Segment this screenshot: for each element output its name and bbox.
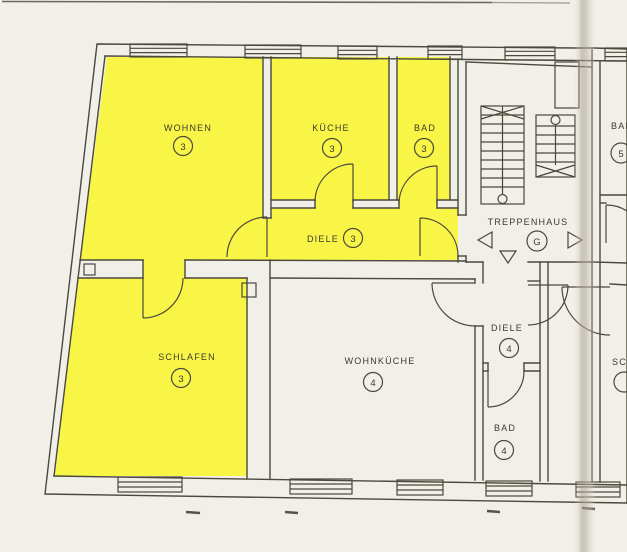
room-number-kueche: 3 [329, 144, 334, 155]
room-label-diele3: DIELE [307, 234, 339, 244]
cropped-top-line [2, 2, 492, 3]
room-label-bad3: BAD [414, 123, 436, 133]
door-right-apartment-upper [606, 205, 627, 243]
window-bottom-wohnkueche-1 [290, 479, 352, 494]
window-top-right-apartment [605, 48, 627, 61]
cropped-top-line-faint [492, 3, 570, 4]
room-number-treppenhaus: G [533, 237, 540, 248]
room-label-bad4: BAD [494, 423, 516, 433]
room-number-schlafen: 3 [178, 374, 183, 385]
window-top-kueche [245, 45, 301, 58]
stairwell [466, 62, 592, 263]
room-bad5-partial: BAD 5 [611, 121, 627, 163]
room-label-bad5: BAD [611, 121, 627, 131]
floor-plan-drawing: WOHNEN 3 KÜCHE 3 BAD 3 DIELE 3 SCHLAFEN … [0, 0, 627, 552]
room-number-diele3: 3 [350, 234, 355, 245]
paper-fold-crease [574, 0, 596, 552]
room-number-circle [614, 372, 627, 392]
room-label-schlafen: SCHLAFEN [158, 352, 216, 362]
room-bad4: BAD 4 [494, 423, 516, 460]
room-number-wohnen: 3 [180, 142, 185, 153]
stairs-right-flight [536, 115, 575, 177]
room-number-diele4: 4 [506, 344, 511, 355]
room-wohnkueche: WOHNKÜCHE 4 [345, 356, 416, 392]
room-number-bad4: 4 [501, 446, 506, 457]
room-diele4: DIELE 4 [491, 323, 523, 358]
door-wohnkueche [432, 283, 475, 326]
room-number-bad3: 3 [421, 144, 426, 155]
room-number-wohnkueche: 4 [370, 378, 375, 389]
room-treppenhaus: TREPPENHAUS G [488, 217, 569, 251]
chimney-square-left [84, 264, 95, 275]
room-label-wohnen: WOHNEN [164, 123, 212, 133]
room-number-bad5: 5 [618, 149, 623, 160]
window-top-wohnen [130, 44, 187, 57]
room-label-treppenhaus: TREPPENHAUS [488, 217, 569, 227]
arrow-left-icon [478, 232, 492, 248]
room-label-kueche: KÜCHE [312, 123, 350, 133]
stair-newel-circle [498, 195, 507, 204]
room-schlafen5-partial: SC [612, 357, 627, 392]
window-top-stairwell [505, 47, 555, 60]
floor-plan-page: WOHNEN 3 KÜCHE 3 BAD 3 DIELE 3 SCHLAFEN … [0, 0, 627, 552]
stair-newel-circle [551, 116, 560, 125]
room-label-diele4: DIELE [491, 323, 523, 333]
room-label-schlafen5: SC [612, 357, 627, 367]
room-label-wohnkueche: WOHNKÜCHE [345, 356, 416, 366]
window-bottom-schlafen [118, 477, 182, 492]
highlight-schlafen [55, 278, 247, 476]
stairs-left-flight [481, 106, 524, 204]
door-bad4 [488, 371, 524, 407]
dimension-ticks [186, 508, 595, 513]
arrow-down-icon [500, 251, 516, 263]
